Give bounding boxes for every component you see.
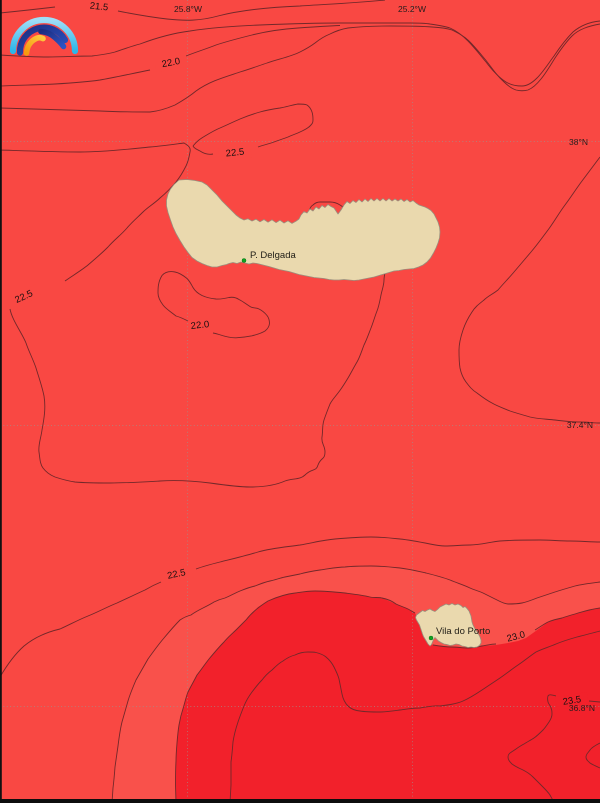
svg-text:22.5: 22.5 <box>225 147 245 160</box>
svg-text:37.4°N: 37.4°N <box>567 420 593 430</box>
svg-text:25.2°W: 25.2°W <box>398 4 426 14</box>
svg-text:25.8°W: 25.8°W <box>174 4 202 14</box>
svg-text:38°N: 38°N <box>569 137 588 147</box>
svg-text:36.8°N: 36.8°N <box>569 703 595 713</box>
svg-text:22.0: 22.0 <box>190 319 210 332</box>
svg-text:P. Delgada: P. Delgada <box>250 250 296 261</box>
svg-text:21.5: 21.5 <box>89 1 109 14</box>
svg-text:Vila do Porto: Vila do Porto <box>436 626 490 637</box>
